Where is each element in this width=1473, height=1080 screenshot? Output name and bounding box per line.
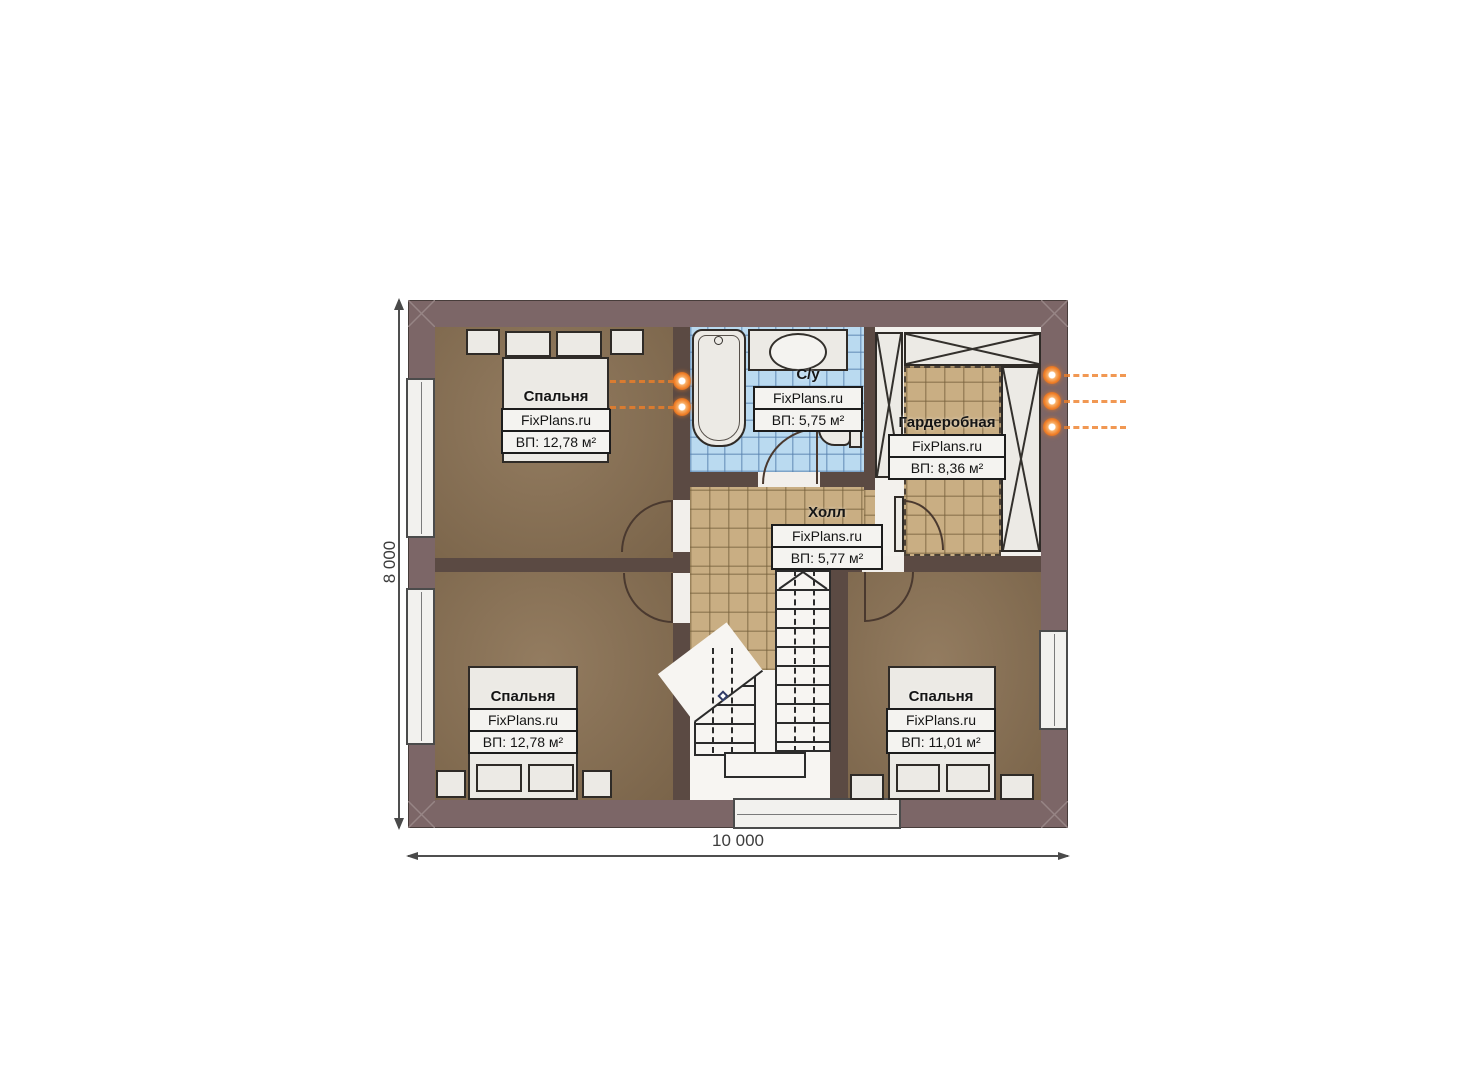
partition-wall (904, 556, 1041, 572)
room-name: Спальня (501, 388, 611, 405)
room-name: С/у (753, 366, 863, 383)
service-dashed-line (610, 406, 674, 409)
stair-flight-up (775, 568, 831, 752)
room-area: ВП: 11,01 м² (888, 730, 994, 752)
room-name: Спальня (468, 688, 578, 705)
wall-corner-joint (1041, 801, 1068, 828)
service-marker (673, 398, 691, 416)
brand-watermark: FixPlans.ru (773, 526, 881, 546)
stair-dashed-line (731, 648, 733, 753)
floor-plan-canvas: Спальня FixPlans.ru ВП: 12,78 м² С/у Fix… (0, 0, 1473, 1080)
room-area: ВП: 12,78 м² (503, 430, 609, 452)
door-leaf (671, 573, 673, 623)
dimension-arrow-right (1058, 852, 1070, 860)
service-dashed-line (1064, 426, 1126, 429)
service-marker (1043, 392, 1061, 410)
stair-dashed-line (712, 648, 714, 753)
stair-landing (724, 752, 806, 778)
room-label-bedroom-bl: Спальня FixPlans.ru ВП: 12,78 м² (468, 688, 578, 754)
room-name: Спальня (886, 688, 996, 705)
nightstand (582, 770, 612, 798)
stair-direction-arrow (777, 569, 829, 591)
partition-wall (673, 552, 690, 573)
room-label-bathroom: С/у FixPlans.ru ВП: 5,75 м² (753, 366, 863, 432)
nightstand (436, 770, 466, 798)
pillow (896, 764, 940, 792)
brand-watermark: FixPlans.ru (890, 436, 1004, 456)
service-dashed-line (610, 380, 674, 383)
wall-corner-joint (408, 801, 435, 828)
room-label-bedroom-tl: Спальня FixPlans.ru ВП: 12,78 м² (501, 388, 611, 454)
pillow (946, 764, 990, 792)
room-label-hall: Холл FixPlans.ru ВП: 5,77 м² (771, 504, 883, 570)
wardrobe-unit (904, 332, 1041, 366)
door-leaf (816, 428, 818, 484)
nightstand (610, 329, 644, 355)
brand-watermark: FixPlans.ru (503, 410, 609, 430)
dimension-label-horizontal: 10 000 (688, 831, 788, 851)
pillow (528, 764, 574, 792)
brand-watermark: FixPlans.ru (755, 388, 861, 408)
partition-wall (435, 558, 673, 572)
window (733, 798, 901, 829)
brand-watermark: FixPlans.ru (888, 710, 994, 730)
pillow (556, 331, 602, 357)
room-label-bedroom-br: Спальня FixPlans.ru ВП: 11,01 м² (886, 688, 996, 754)
brand-watermark: FixPlans.ru (470, 710, 576, 730)
window (406, 378, 435, 538)
bathtub (692, 329, 746, 447)
room-area: ВП: 12,78 м² (470, 730, 576, 752)
service-dashed-line (1064, 400, 1126, 403)
doorway (673, 500, 690, 552)
window (1039, 630, 1068, 730)
service-dashed-line (1064, 374, 1126, 377)
partition-wall (864, 327, 875, 490)
pillow (476, 764, 522, 792)
service-marker (673, 372, 691, 390)
room-area: ВП: 8,36 м² (890, 456, 1004, 478)
window (406, 588, 435, 745)
door-leaf-wardrobe (894, 496, 904, 552)
wall-corner-joint (408, 300, 435, 327)
nightstand (1000, 774, 1034, 800)
partition-wall (830, 556, 848, 800)
door-leaf (864, 572, 866, 622)
service-marker (1043, 366, 1061, 384)
wardrobe-unit (1001, 366, 1041, 552)
doorway (673, 573, 690, 623)
room-name: Гардеробная (888, 414, 1006, 431)
room-name: Холл (771, 504, 883, 521)
dimension-arrow-down (394, 818, 404, 830)
nightstand (466, 329, 500, 355)
room-area: ВП: 5,75 м² (755, 408, 861, 430)
dimension-arrow-left (406, 852, 418, 860)
nightstand (850, 774, 884, 800)
pillow (505, 331, 551, 357)
partition-wall (690, 472, 758, 487)
dimension-label-vertical: 8 000 (380, 522, 400, 602)
room-area: ВП: 5,77 м² (773, 546, 881, 568)
room-label-wardrobe: Гардеробная FixPlans.ru ВП: 8,36 м² (888, 414, 1006, 480)
partition-wall (820, 472, 864, 487)
door-leaf (671, 500, 673, 552)
dimension-arrow-up (394, 298, 404, 310)
dimension-line-horizontal (408, 855, 1068, 857)
service-marker (1043, 418, 1061, 436)
wall-corner-joint (1041, 300, 1068, 327)
